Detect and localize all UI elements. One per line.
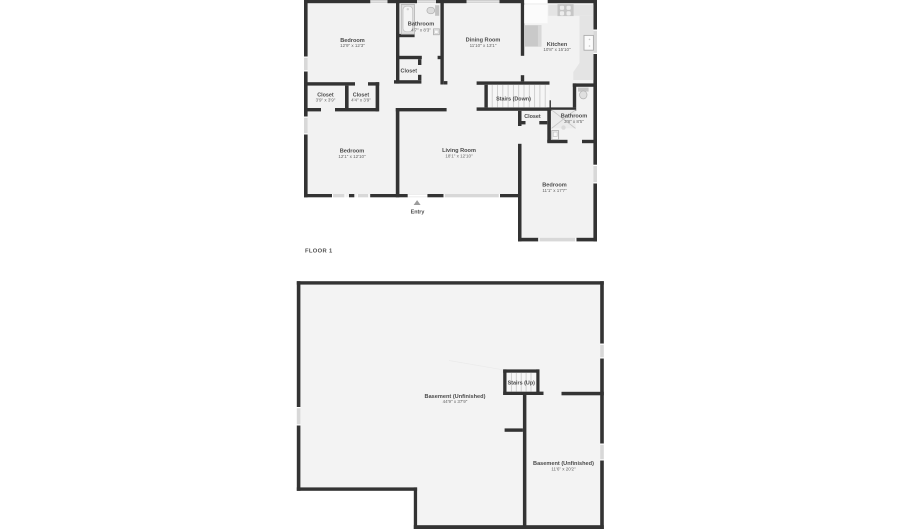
svg-text:4'4" x 3'9": 4'4" x 3'9": [351, 98, 371, 103]
svg-text:11'1" x 17'7": 11'1" x 17'7": [542, 188, 567, 193]
svg-text:FLOOR 1: FLOOR 1: [305, 249, 333, 255]
svg-text:11'6" x 20'2": 11'6" x 20'2": [551, 467, 576, 472]
svg-text:4'7" x 8'3": 4'7" x 8'3": [411, 27, 431, 32]
svg-text:Stairs (Down): Stairs (Down): [496, 96, 531, 102]
svg-text:Entry: Entry: [411, 210, 425, 216]
svg-text:18'1" x 12'10": 18'1" x 12'10": [445, 153, 473, 158]
svg-text:Closet: Closet: [401, 69, 418, 75]
svg-text:12'1" x 12'10": 12'1" x 12'10": [338, 154, 366, 159]
svg-text:Closet: Closet: [524, 114, 541, 120]
svg-text:10'8" x 15'10": 10'8" x 15'10": [543, 47, 571, 52]
svg-text:44'9" x 37'9": 44'9" x 37'9": [443, 399, 468, 404]
svg-text:12'9" x 12'3": 12'9" x 12'3": [340, 43, 365, 48]
svg-text:3'8" x 8'5": 3'8" x 8'5": [564, 119, 584, 124]
svg-text:11'10" x 13'1": 11'10" x 13'1": [470, 43, 497, 48]
svg-text:3'9" x 3'9": 3'9" x 3'9": [316, 98, 336, 103]
svg-text:Stairs (Up): Stairs (Up): [508, 381, 535, 387]
